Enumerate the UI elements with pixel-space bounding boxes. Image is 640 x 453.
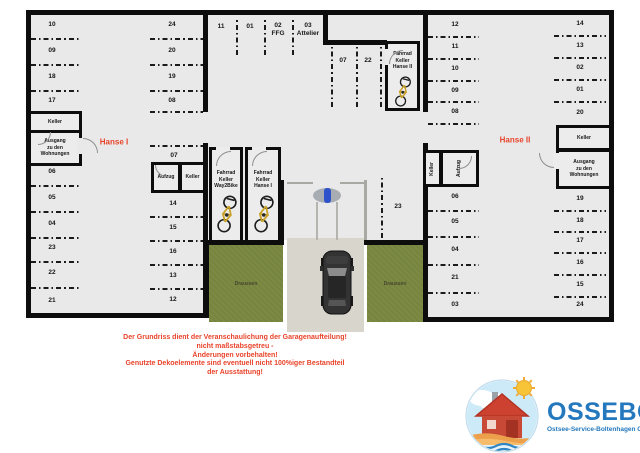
parking-divider-line (150, 38, 203, 40)
parking-space-label: 16 (169, 248, 176, 256)
floor-passage-right (423, 112, 428, 143)
parking-divider-line (31, 261, 79, 263)
parking-divider-line (150, 240, 203, 242)
wall (364, 240, 428, 245)
room-label: Fahrrad Keller Way2Bike (214, 170, 237, 190)
garage-gate-post (324, 188, 331, 203)
wall (205, 240, 209, 318)
parking-space-label: 08 (168, 97, 175, 105)
room-label: Keller (429, 162, 436, 176)
parking-divider-line (428, 123, 479, 125)
parking-space-label: 07 (170, 152, 177, 160)
parking-space-label: 09 (48, 47, 55, 55)
wall (323, 40, 387, 45)
wall (26, 313, 208, 318)
parking-divider-line (31, 211, 79, 213)
ausgang-room-hanse2: Ausgang zu den Wohnungen (556, 149, 612, 189)
parking-divider-line (428, 80, 479, 82)
building-label-hanse1: Hanse I (100, 138, 128, 147)
parking-divider-line (150, 64, 203, 66)
floor-passage-left (203, 112, 208, 143)
parking-space-label: 05 (451, 218, 458, 226)
parking-space-label: 15 (576, 281, 583, 289)
parking-divider-line (31, 64, 79, 66)
parking-divider-line (31, 38, 79, 40)
parking-divider-line (264, 17, 266, 55)
disclaimer-line: Der Grundriss dient der Veranschaulichun… (85, 334, 385, 343)
parking-space-label: 02 (576, 64, 583, 72)
disclaimer-line: der Ausstattung! (85, 369, 385, 378)
parking-divider-line (236, 17, 238, 55)
parking-divider-line (428, 236, 479, 238)
parking-divider-line (331, 47, 333, 107)
parking-space-label: 10 (48, 21, 55, 29)
gate-rail (316, 202, 318, 240)
parking-space-label: 09 (451, 87, 458, 95)
parking-divider-line (380, 47, 382, 107)
parking-space-label: 08 (451, 108, 458, 116)
parking-space-label: 04 (451, 246, 458, 254)
bicycle-icon (390, 73, 415, 109)
draussen-label-left: Draussen (235, 281, 258, 287)
room-label: Fahrrad Keller Hanse I (254, 170, 273, 190)
parking-divider-line (31, 90, 79, 92)
garage-floor-plan: Draussen Draussen (0, 0, 640, 453)
parking-space-label: 20 (576, 109, 583, 117)
bicycle-icon (248, 192, 279, 236)
car-icon (320, 250, 354, 316)
parking-space-label: 21 (451, 274, 458, 282)
parking-divider-line (428, 210, 479, 212)
parking-divider-line (554, 57, 606, 59)
parking-space-label: 18 (576, 217, 583, 225)
parking-space-label: 05 (48, 194, 55, 202)
gate-rail (336, 202, 338, 240)
parking-divider-line (428, 292, 479, 294)
parking-space-label: 15 (169, 224, 176, 232)
parking-space-label: 17 (576, 237, 583, 245)
ausgang-room-hanse1: Ausgang zu den Wohnungen (28, 130, 82, 166)
parking-divider-line (554, 274, 606, 276)
keller-room-hanse2: Keller (556, 125, 612, 151)
parking-space-label: 13 (169, 272, 176, 280)
parking-space-label: 16 (576, 259, 583, 267)
wall (364, 180, 367, 245)
parking-space-label: 22 (48, 269, 55, 277)
room-label: Ausgang zu den Wohnungen (570, 159, 599, 179)
parking-space-label: 24 (168, 21, 175, 29)
disclaimer-text: Der Grundriss dient der Veranschaulichun… (85, 334, 385, 378)
parking-space-label: 07 (339, 57, 346, 65)
room-label: Keller (186, 174, 200, 181)
parking-divider-line (150, 216, 203, 218)
parking-divider-line (554, 296, 606, 298)
sun-icon (513, 377, 535, 399)
parking-divider-line (554, 35, 606, 37)
keller-room-hanse1-inner: Keller (179, 162, 206, 193)
building-label-hanse2: Hanse II (500, 136, 531, 145)
wall (203, 10, 208, 112)
parking-divider-line (554, 210, 606, 212)
bicycle-icon (211, 192, 242, 236)
parking-divider-line (292, 17, 294, 55)
parking-divider-line (150, 111, 203, 113)
parking-space-label: 12 (169, 296, 176, 304)
parking-divider-line (356, 47, 358, 107)
disclaimer-line: Genutzte Dekoelemente sind eventuell nic… (85, 360, 385, 369)
logo-wordmark: OSSEBO (547, 399, 640, 425)
parking-divider-line (554, 252, 606, 254)
wall (26, 10, 614, 15)
parking-space-label: 04 (48, 220, 55, 228)
parking-divider-line (428, 58, 479, 60)
wall (423, 10, 428, 112)
parking-space-label: 06 (48, 168, 55, 176)
parking-space-label: 12 (451, 21, 458, 29)
parking-divider-line (554, 101, 606, 103)
room-label: Keller (577, 135, 591, 142)
parking-space-label: 02 FFG (272, 22, 285, 38)
parking-space-label: 23 (48, 244, 55, 252)
parking-divider-line (554, 79, 606, 81)
parking-divider-line (150, 288, 203, 290)
parking-space-label: 22 (364, 57, 371, 65)
parking-space-label: 14 (169, 200, 176, 208)
parking-space-label: 03 Attelier (297, 22, 319, 38)
parking-space-label: 19 (168, 73, 175, 81)
company-logo: OSSEBO Ostsee-Service-Boltenhagen GmbH (547, 399, 640, 433)
wall (287, 182, 313, 184)
room-label: Keller (48, 119, 62, 126)
parking-space-label: 10 (451, 65, 458, 73)
parking-space-label: 20 (168, 47, 175, 55)
parking-space-label: 06 (451, 193, 458, 201)
logo-subtitle: Ostsee-Service-Boltenhagen GmbH (547, 426, 640, 433)
parking-divider-line (150, 90, 203, 92)
wall (423, 317, 614, 322)
parking-divider-line (31, 237, 79, 239)
parking-divider-line (428, 36, 479, 38)
parking-space-label: 14 (576, 20, 583, 28)
parking-space-label: 11 (218, 23, 225, 31)
parking-space-label: 21 (48, 297, 55, 305)
parking-divider-line (150, 145, 203, 147)
parking-space-label: 23 (394, 203, 401, 211)
parking-space-label: 01 (576, 86, 583, 94)
disclaimer-line: Änderungen vorbehalten! (85, 352, 385, 361)
parking-space-label: 03 (451, 301, 458, 309)
parking-space-label: 01 (246, 23, 253, 31)
parking-divider-line (150, 264, 203, 266)
parking-space-label: 13 (576, 42, 583, 50)
parking-divider-line (554, 231, 606, 233)
draussen-label-right: Draussen (384, 281, 407, 287)
parking-space-label: 17 (48, 97, 55, 105)
parking-divider-line (428, 101, 479, 103)
logo-emblem-icon (462, 376, 546, 453)
parking-divider-line (428, 264, 479, 266)
wall (340, 182, 364, 184)
disclaimer-line: nicht maßstabsgetreu - (85, 343, 385, 352)
parking-space-label: 18 (48, 73, 55, 81)
parking-space-label: 24 (576, 301, 583, 309)
parking-divider-line (31, 287, 79, 289)
parking-space-label: 11 (452, 43, 459, 51)
parking-space-label: 19 (576, 195, 583, 203)
parking-divider-line (31, 185, 79, 187)
parking-divider-line (381, 178, 383, 238)
